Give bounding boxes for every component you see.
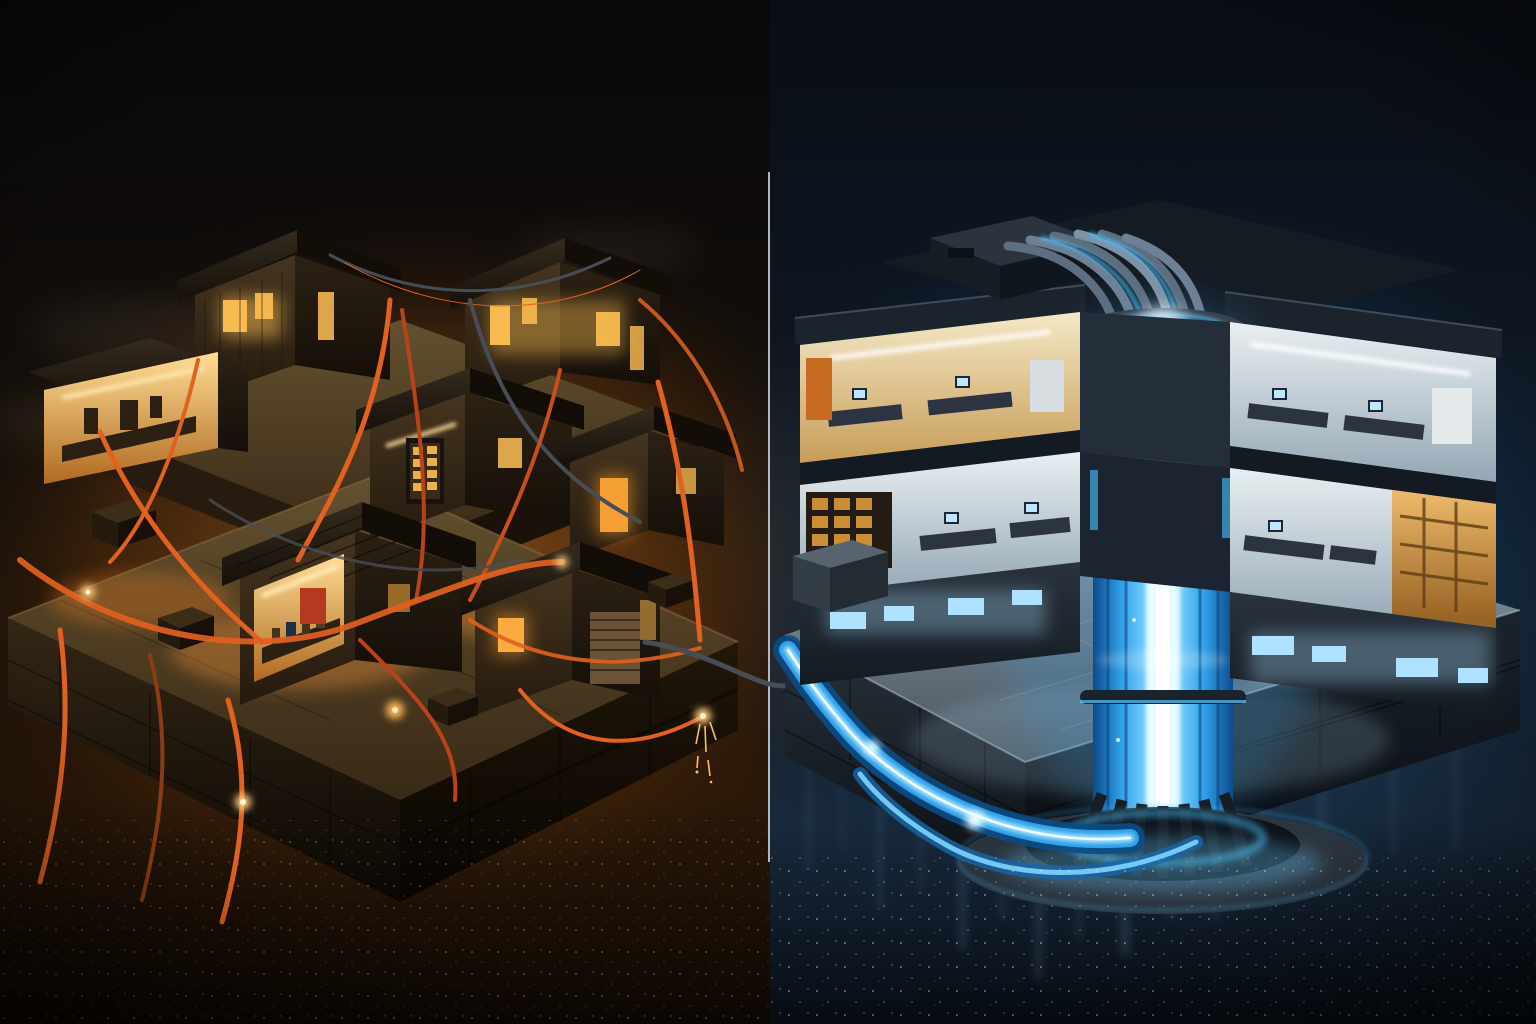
- split-scene-artwork: [0, 0, 1536, 1024]
- illustration-canvas: [0, 0, 1536, 1024]
- vignette: [0, 0, 1536, 1024]
